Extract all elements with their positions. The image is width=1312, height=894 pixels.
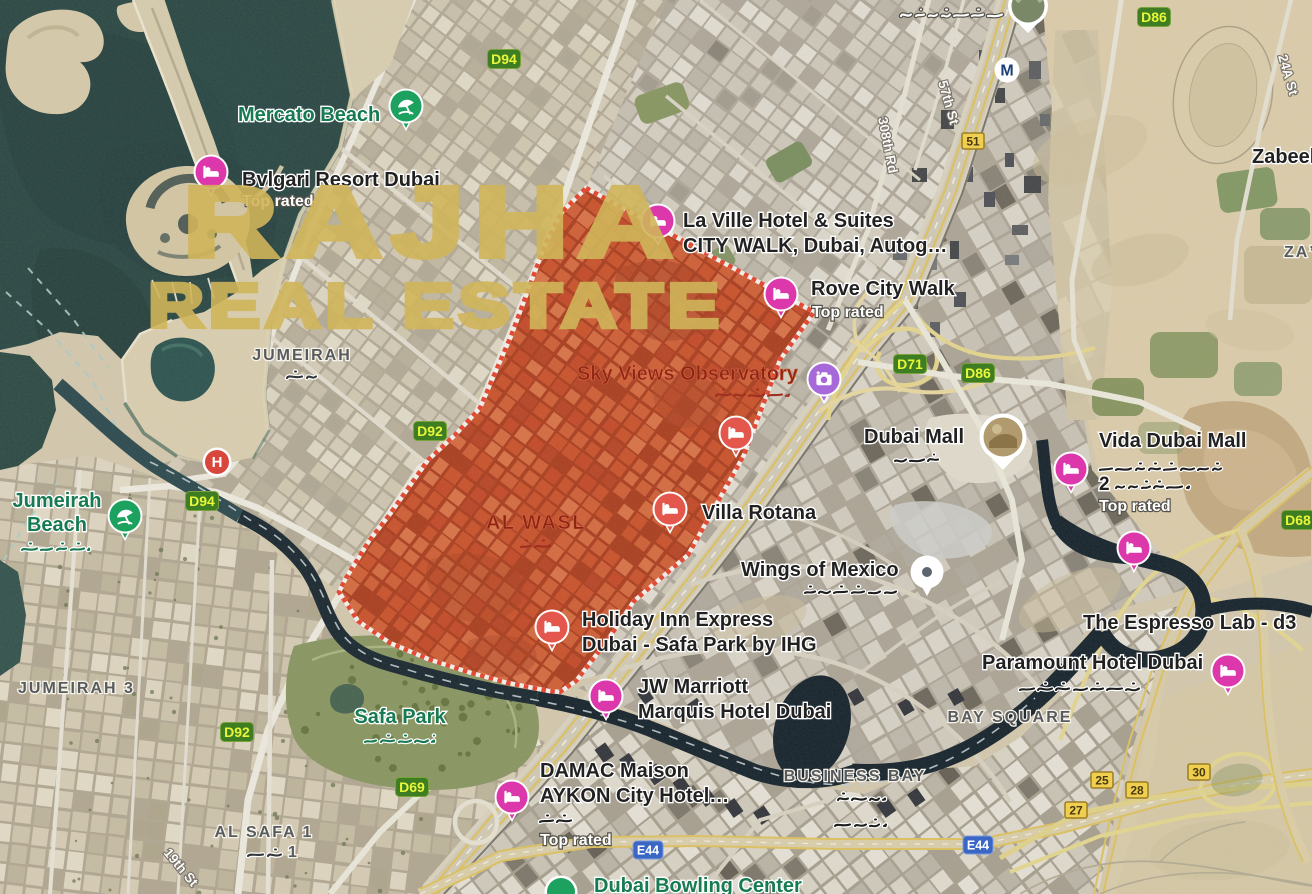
svg-text:Dubai Mall: Dubai Mall bbox=[864, 426, 964, 448]
svg-text:D68: D68 bbox=[1285, 512, 1311, 528]
svg-text:Top rated: Top rated bbox=[1099, 498, 1171, 515]
svg-text:Dubai - Safa Park by IHG: Dubai - Safa Park by IHG bbox=[582, 634, 817, 656]
svg-text:Jumeirah: Jumeirah bbox=[13, 490, 102, 512]
svg-text:BUSINESS BAY: BUSINESS BAY bbox=[784, 768, 927, 785]
svg-text:D69: D69 bbox=[399, 779, 425, 795]
svg-text:H: H bbox=[212, 454, 223, 471]
svg-text:D94: D94 bbox=[189, 493, 215, 509]
svg-text:27: 27 bbox=[1069, 804, 1083, 818]
svg-text:E44: E44 bbox=[637, 844, 659, 858]
svg-text:Dubai Bowling Center: Dubai Bowling Center bbox=[594, 875, 802, 894]
svg-text:CITY WALK, Dubai, Autog…: CITY WALK, Dubai, Autog… bbox=[683, 235, 947, 257]
svg-text:The Espresso Lab - d3: The Espresso Lab - d3 bbox=[1083, 612, 1296, 634]
svg-text:Rove City Walk: Rove City Walk bbox=[811, 278, 956, 300]
svg-text:AYKON City Hotel…: AYKON City Hotel… bbox=[540, 785, 729, 807]
svg-text:BAY SQUARE: BAY SQUARE bbox=[948, 709, 1073, 726]
svg-text:Holiday Inn Express: Holiday Inn Express bbox=[582, 609, 773, 631]
svg-text:2: 2 bbox=[1099, 474, 1110, 495]
svg-text:Marquis Hotel Dubai: Marquis Hotel Dubai bbox=[638, 701, 831, 723]
svg-text:AL SAFA 1: AL SAFA 1 bbox=[215, 824, 314, 841]
svg-text:1: 1 bbox=[288, 844, 299, 861]
svg-text:Paramount Hotel Dubai: Paramount Hotel Dubai bbox=[982, 652, 1203, 674]
svg-text:Zabeel: Zabeel bbox=[1252, 146, 1312, 168]
svg-text:ZAʼA: ZAʼA bbox=[1284, 244, 1312, 261]
svg-text:Sky Views Observatory: Sky Views Observatory bbox=[577, 363, 799, 385]
svg-text:Beach: Beach bbox=[27, 514, 87, 536]
svg-text:La Ville Hotel & Suites: La Ville Hotel & Suites bbox=[683, 210, 894, 232]
svg-text:REAL ESTATE: REAL ESTATE bbox=[148, 271, 724, 340]
svg-text:30: 30 bbox=[1192, 766, 1206, 780]
svg-text:RAJHA: RAJHA bbox=[183, 168, 682, 278]
svg-text:Safa Park: Safa Park bbox=[354, 706, 446, 728]
svg-text:D86: D86 bbox=[1141, 9, 1167, 25]
svg-text:Top rated: Top rated bbox=[540, 832, 612, 849]
svg-text:51: 51 bbox=[966, 135, 980, 149]
svg-text:M: M bbox=[1000, 63, 1013, 80]
svg-text:AL WASL: AL WASL bbox=[486, 512, 586, 534]
svg-text:DAMAC Maison: DAMAC Maison bbox=[540, 760, 689, 782]
svg-text:25: 25 bbox=[1095, 774, 1109, 788]
svg-text:Wings of Mexico: Wings of Mexico bbox=[741, 559, 899, 581]
svg-text:JW Marriott: JW Marriott bbox=[638, 676, 748, 698]
svg-text:D92: D92 bbox=[224, 724, 250, 740]
svg-text:D71: D71 bbox=[897, 356, 923, 372]
svg-text:D86: D86 bbox=[965, 365, 991, 381]
svg-text:D92: D92 bbox=[417, 423, 443, 439]
svg-text:Villa Rotana: Villa Rotana bbox=[702, 502, 817, 524]
svg-text:JUMEIRAH 3: JUMEIRAH 3 bbox=[18, 680, 135, 697]
svg-text:Mercato Beach: Mercato Beach bbox=[238, 104, 380, 126]
svg-text:Top rated: Top rated bbox=[812, 304, 884, 321]
svg-text:JUMEIRAH: JUMEIRAH bbox=[252, 347, 352, 364]
svg-text:Vida Dubai Mall: Vida Dubai Mall bbox=[1099, 430, 1246, 452]
svg-text:28: 28 bbox=[1130, 784, 1144, 798]
svg-text:E44: E44 bbox=[967, 839, 989, 853]
svg-text:D94: D94 bbox=[491, 51, 517, 67]
